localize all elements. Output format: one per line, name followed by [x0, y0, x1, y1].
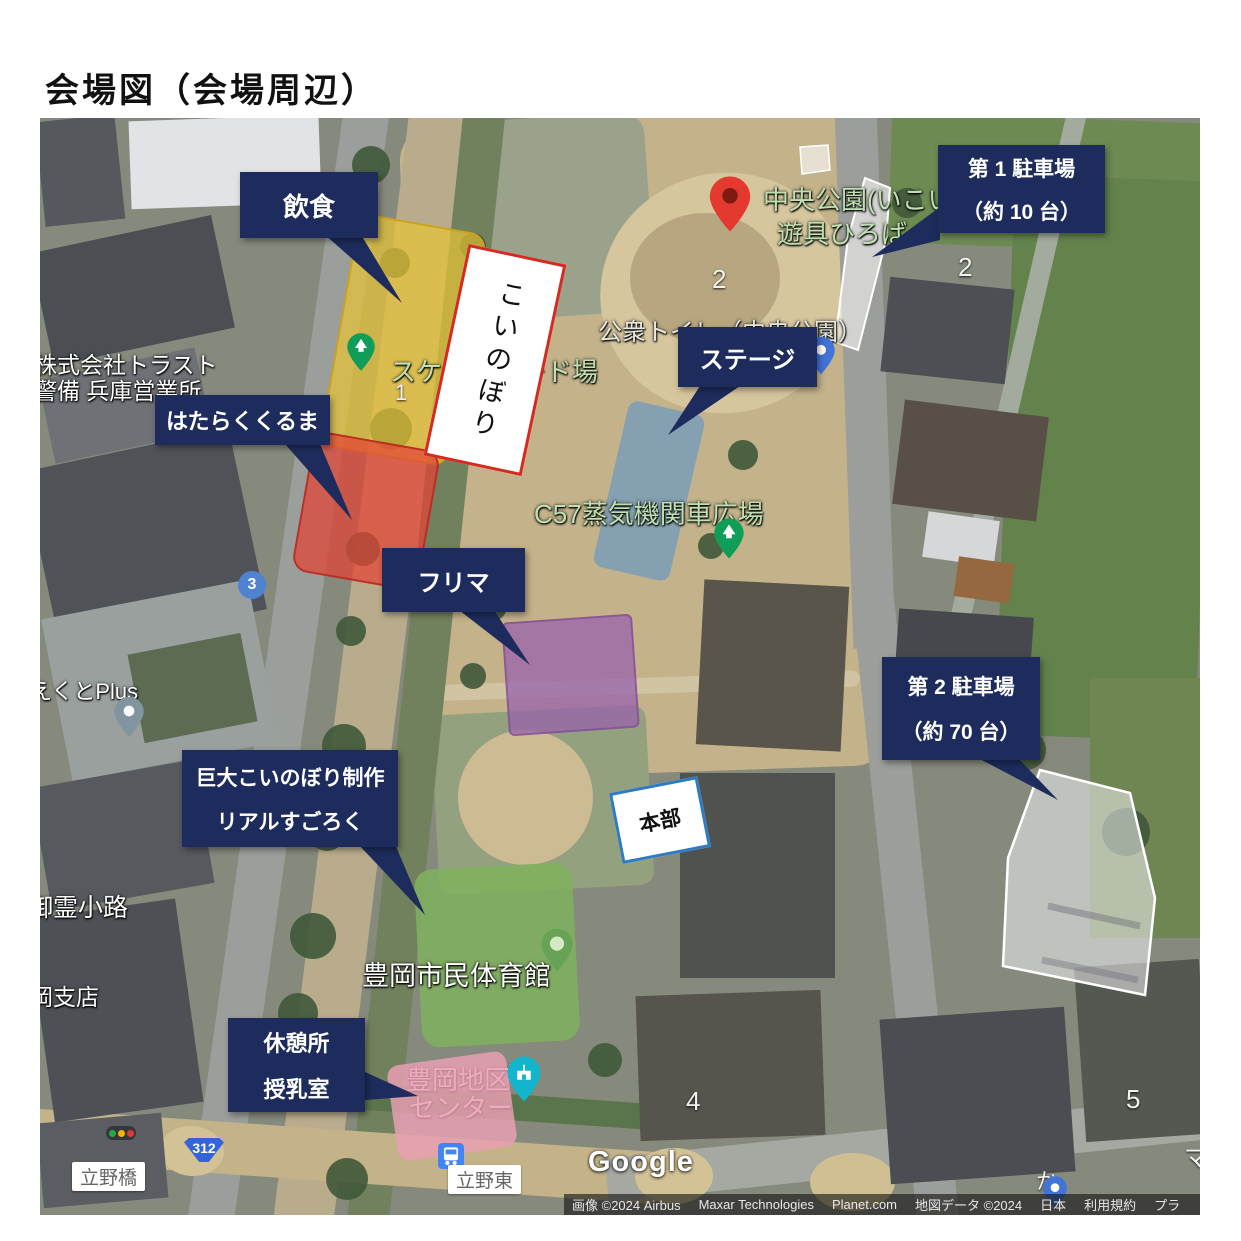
callout-working-vehicles-label: はたらくくるま [166, 404, 319, 436]
pointer-flea-market [455, 607, 530, 665]
callout-koinobori-craft-line2: リアルすごろく [217, 806, 364, 836]
callout-stage-label: ステージ [700, 340, 796, 375]
pointer-food [323, 233, 402, 303]
callout-parking1-line1: 第 1 駐車場 [968, 153, 1075, 183]
callout-flea-market: フリマ [382, 548, 525, 612]
satellite-map: 中央公園(いこい 遊具ひろば 公衆トイレ（中央公園） スケートボード場 C57蒸… [40, 118, 1200, 1215]
pointer-koinobori-craft [358, 844, 425, 915]
attribution-imagery: 画像 ©2024 Airbus [572, 1195, 681, 1214]
attribution-mapdata: 地図データ ©2024 [915, 1195, 1022, 1214]
attribution-privacy-link[interactable]: プラ [1154, 1195, 1180, 1214]
attribution-bar: 画像 ©2024 Airbus Maxar Technologies Plane… [564, 1194, 1200, 1215]
attribution-maxar: Maxar Technologies [699, 1197, 814, 1212]
callout-koinobori-craft-line1: 巨大こいのぼり制作 [196, 762, 385, 792]
callout-food: 飲食 [240, 172, 378, 238]
pointer-parking2 [978, 758, 1058, 800]
pointer-rest-area [365, 1072, 418, 1100]
callout-parking2: 第 2 駐車場 （約 70 台） [882, 657, 1040, 760]
attribution-terms-link[interactable]: 利用規約 [1084, 1195, 1136, 1214]
callout-stage: ステージ [678, 327, 817, 387]
venue-map-page: 会場図（会場周辺） 中央公園(いこい 遊具ひろば 公衆トイレ（中央公園） スケー… [0, 0, 1241, 1241]
callout-parking2-line1: 第 2 駐車場 [907, 671, 1014, 701]
callout-rest-area: 休憩所 授乳室 [228, 1018, 365, 1112]
attribution-country: 日本 [1040, 1195, 1066, 1214]
callout-rest-area-line2: 授乳室 [263, 1072, 329, 1104]
callout-parking1: 第 1 駐車場 （約 10 台） [938, 145, 1105, 233]
callout-rest-area-line1: 休憩所 [263, 1026, 329, 1058]
google-logo: Google [588, 1146, 694, 1179]
callout-working-vehicles: はたらくくるま [155, 395, 330, 445]
callout-parking2-line2: （約 70 台） [901, 716, 1020, 746]
callout-parking1-line2: （約 10 台） [962, 196, 1081, 226]
pointer-working-vehicles [285, 444, 352, 520]
callout-food-label: 飲食 [283, 187, 335, 224]
attribution-planet: Planet.com [832, 1197, 897, 1212]
pointer-stage [668, 386, 740, 435]
pointer-parking1 [872, 207, 940, 257]
callout-flea-market-label: フリマ [418, 563, 490, 598]
page-title: 会場図（会場周辺） [45, 63, 378, 112]
callout-koinobori-craft: 巨大こいのぼり制作 リアルすごろく [182, 750, 398, 847]
